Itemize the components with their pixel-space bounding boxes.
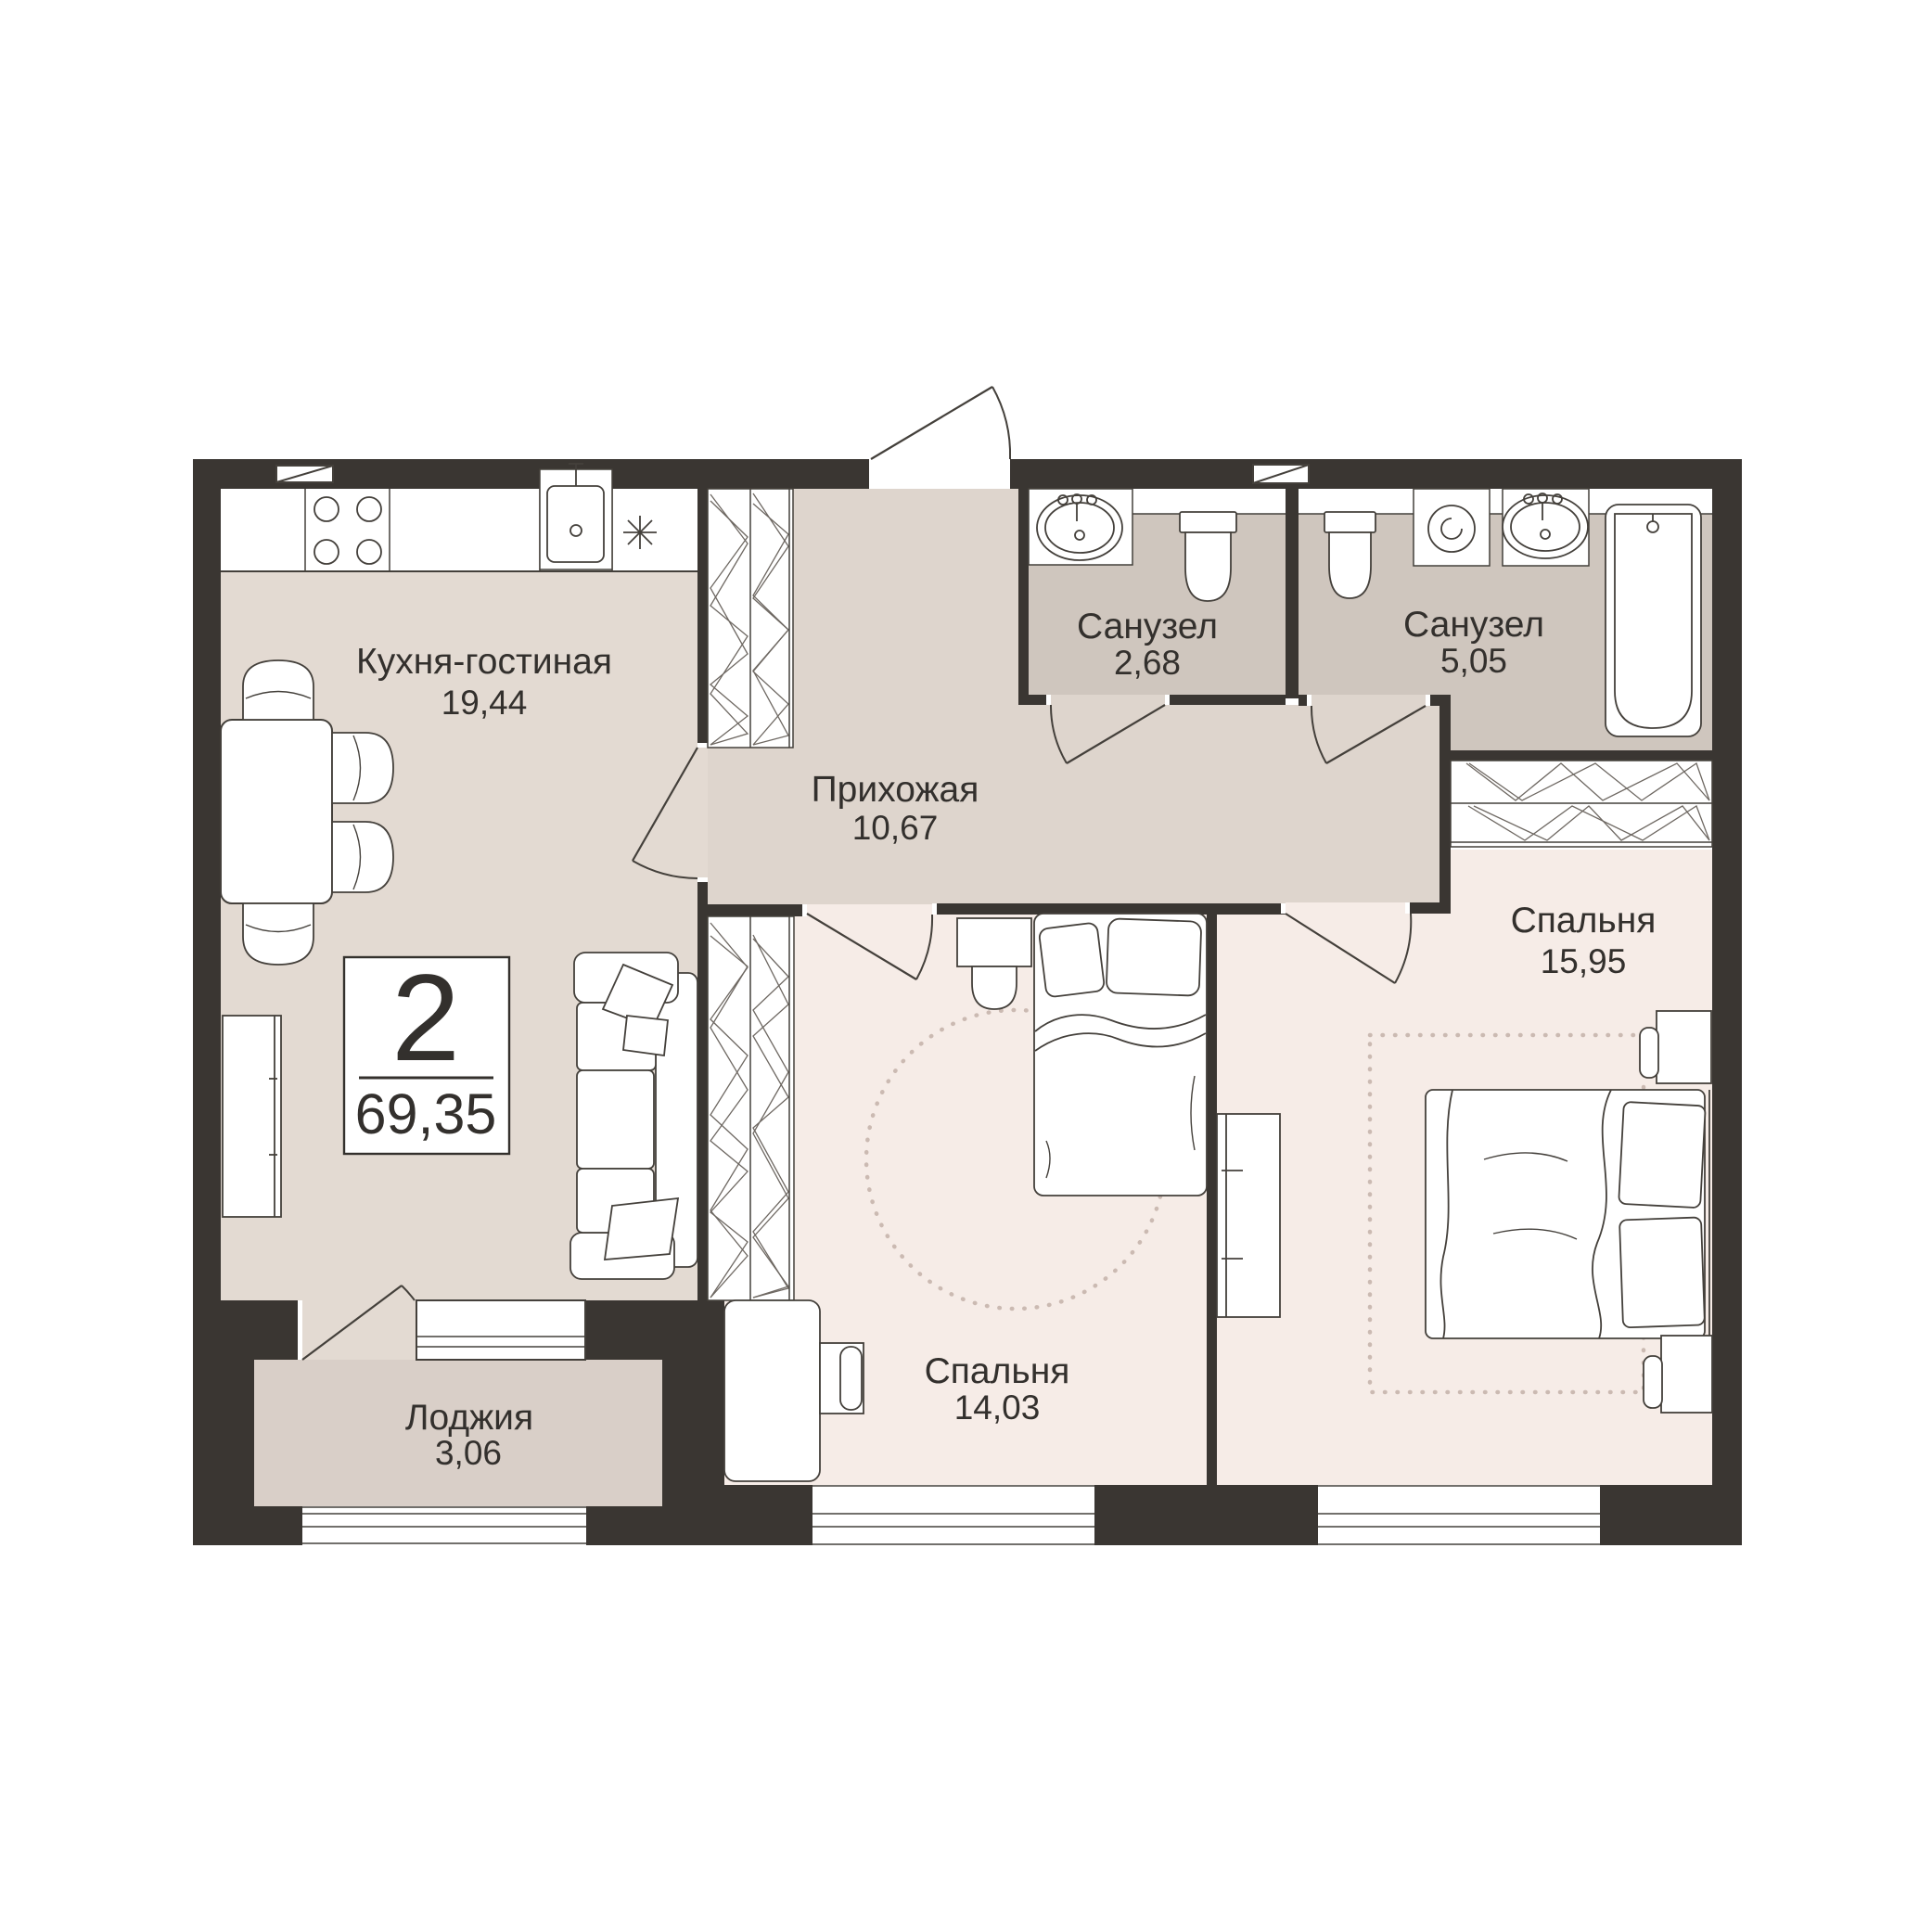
svg-text:Санузел: Санузел bbox=[1403, 605, 1544, 645]
svg-text:Кухня-гостиная: Кухня-гостиная bbox=[356, 642, 612, 682]
svg-text:14,03: 14,03 bbox=[954, 1388, 1041, 1427]
svg-text:Прихожая: Прихожая bbox=[812, 770, 979, 810]
svg-text:2,68: 2,68 bbox=[1114, 644, 1181, 682]
svg-text:69,35: 69,35 bbox=[355, 1082, 497, 1145]
svg-text:15,95: 15,95 bbox=[1541, 942, 1627, 980]
svg-text:Лоджия: Лоджия bbox=[405, 1398, 533, 1438]
svg-text:3,06: 3,06 bbox=[435, 1434, 502, 1472]
svg-text:2: 2 bbox=[391, 950, 460, 1087]
svg-text:19,44: 19,44 bbox=[441, 684, 528, 722]
svg-text:Санузел: Санузел bbox=[1077, 607, 1218, 646]
svg-text:Спальня: Спальня bbox=[1511, 901, 1657, 940]
svg-text:5,05: 5,05 bbox=[1440, 642, 1507, 680]
svg-text:10,67: 10,67 bbox=[852, 809, 939, 847]
svg-text:Спальня: Спальня bbox=[925, 1351, 1070, 1391]
